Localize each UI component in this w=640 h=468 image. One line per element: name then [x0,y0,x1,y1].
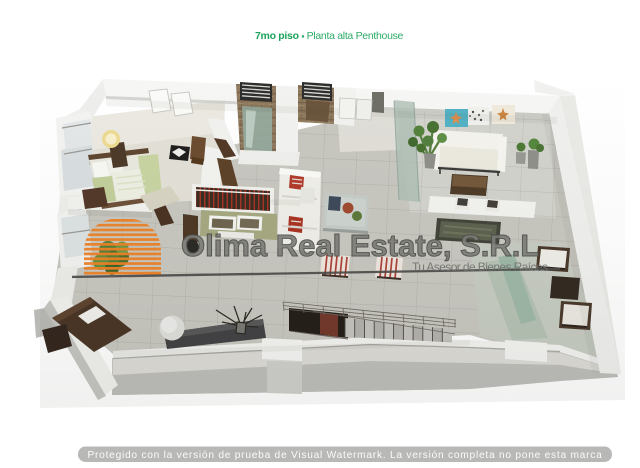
svg-text:Tu Asesor de Bienes Raíces: Tu Asesor de Bienes Raíces [412,260,548,274]
svg-text:7mo piso ▪ Planta alta Penthou: 7mo piso ▪ Planta alta Penthouse [255,30,404,42]
svg-text:Protegido con la versión de pr: Protegido con la versión de prueba de Vi… [87,450,602,461]
svg-text:Olima Real Estate, S.R.L: Olima Real Estate, S.R.L [181,228,539,263]
